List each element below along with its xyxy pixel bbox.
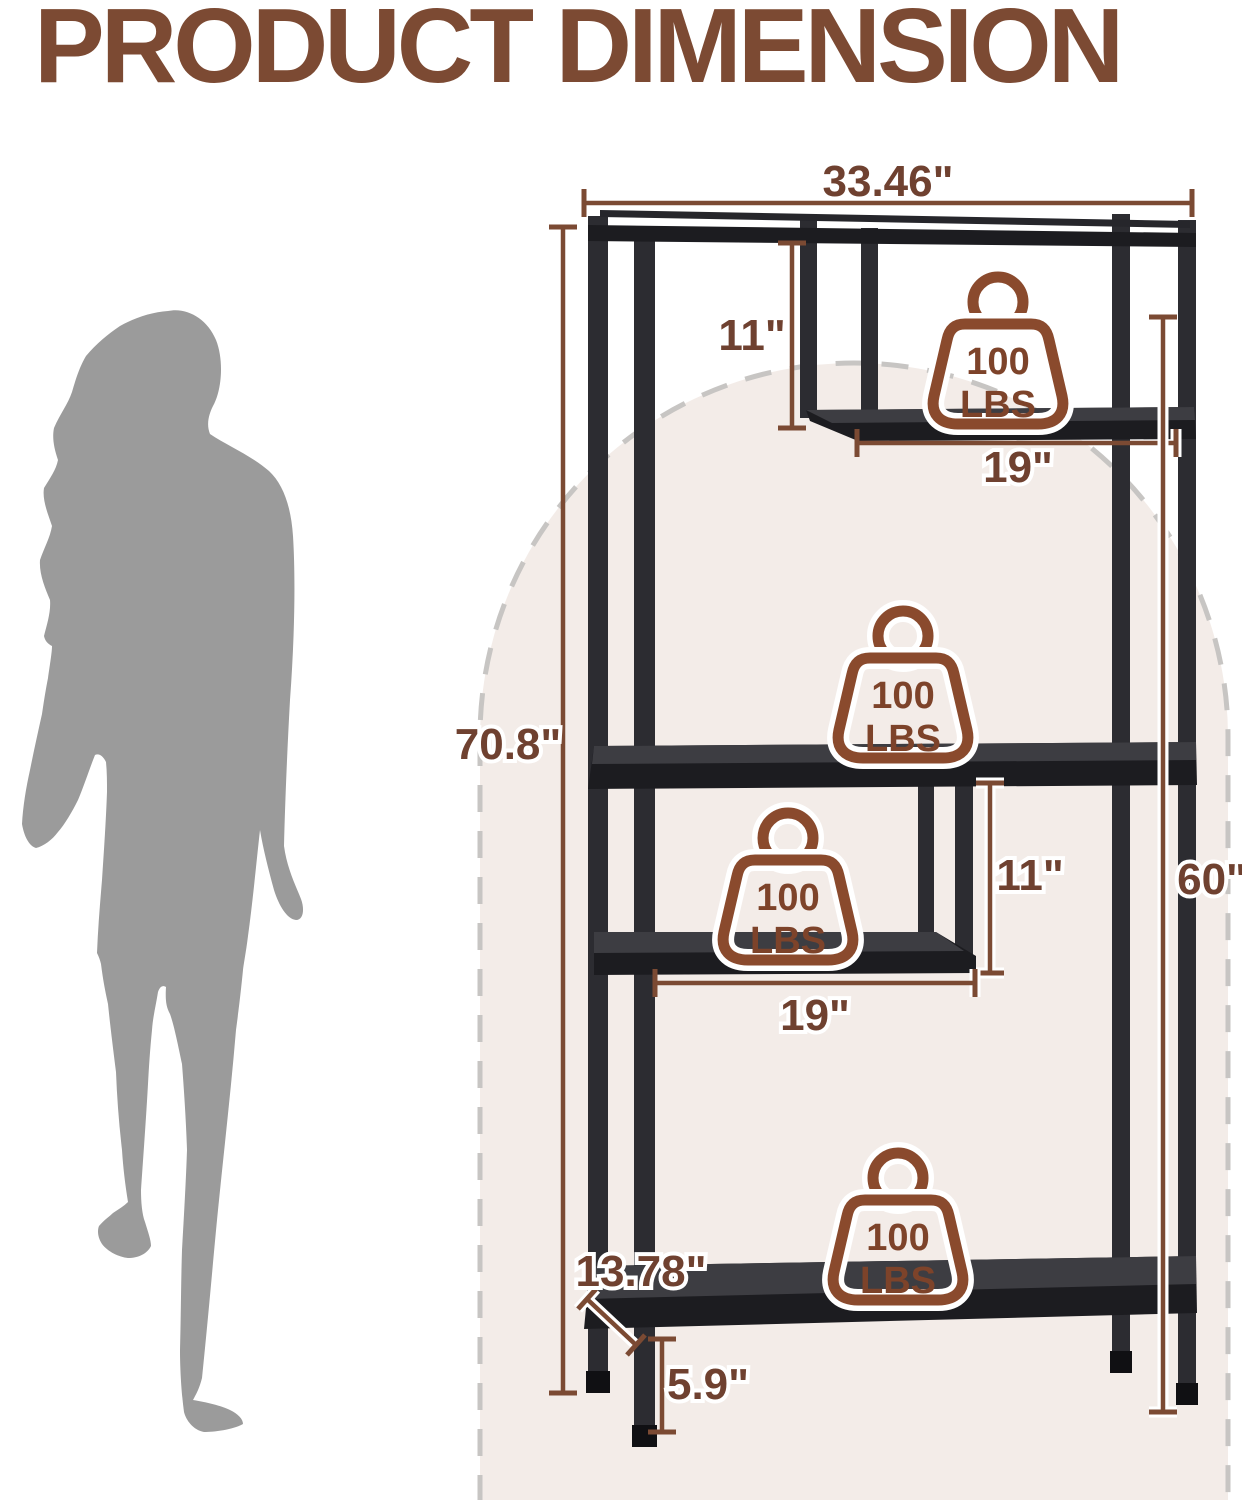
foot-cap [1176,1383,1198,1405]
middle-box-post-front [955,786,973,970]
weight-unit: LBS [960,384,1036,426]
dimension-diagram: 33.46" 70.8" 11" 19" [0,0,1242,1500]
dim-upper-height-label: 11" [718,311,785,360]
top-rail-front [588,225,1196,247]
shelf-post-back-right [1112,214,1130,1373]
woman-silhouette [22,310,303,1432]
weight-unit: LBS [750,920,826,962]
dim-middle-width-label: 19" [780,991,850,1040]
foot-cap [632,1425,657,1447]
dim-right-height-label: 60" [1177,855,1242,904]
shelf-post-back-left [588,216,608,1393]
top-rail-back [600,210,1190,228]
product-dimension-page: 33.46" 70.8" 11" 19" [0,0,1242,1500]
foot-cap [1110,1351,1132,1373]
weight-value: 100 [966,341,1029,383]
foot-cap [586,1371,610,1393]
upper-box-post-front [861,228,878,436]
dim-upper-width-label: 19" [983,443,1053,492]
page-title: PRODUCT DIMENSION [34,0,1120,107]
shelf-post-front-right [1178,220,1196,1405]
dim-overall-width: 33.46" [584,157,1192,217]
middle-box-post-back [918,786,934,938]
weight-value: 100 [866,1217,929,1259]
dim-middle-height-label: 11" [996,851,1063,900]
weight-value: 100 [756,877,819,919]
weight-unit: LBS [865,718,941,760]
weight-unit: LBS [860,1260,936,1302]
dim-ground-clearance-label: 5.9" [667,1360,749,1409]
dim-overall-height-label: 70.8" [455,720,562,769]
dim-depth-label: 13.78" [576,1247,707,1296]
dim-overall-width-label: 33.46" [823,157,954,206]
weight-value: 100 [871,675,934,717]
